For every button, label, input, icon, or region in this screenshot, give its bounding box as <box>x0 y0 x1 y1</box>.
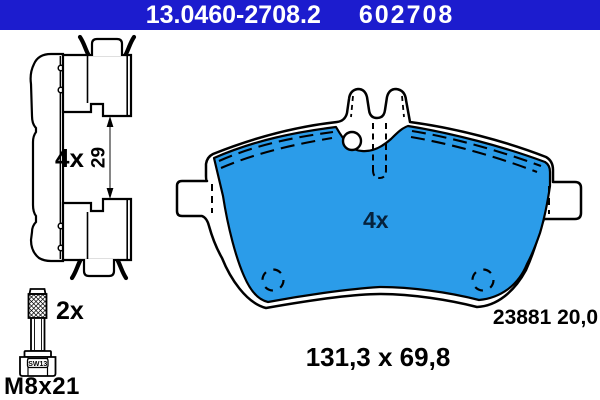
side-top-clip-tab <box>92 39 122 56</box>
side-bottom-clip-prong-right <box>118 261 126 278</box>
side-friction-block-upper <box>63 55 131 116</box>
side-top-clip-prong-right <box>126 37 134 54</box>
bolt-thread <box>29 294 47 318</box>
side-bottom-clip-prong-left <box>72 261 80 278</box>
brake-pad-technical-drawing: 13.0460-2708.2 602708 <box>0 0 600 400</box>
dimension-arrow-up <box>107 116 114 127</box>
pad-wva-thickness-label: 23881 20,0 <box>478 306 598 330</box>
pad-dimensions-label: 131,3 x 69,8 <box>278 342 478 373</box>
sensor-hole <box>343 132 361 150</box>
pad-front-drawing <box>177 89 581 308</box>
bolt-shank <box>31 318 45 351</box>
bolt-drawing: SW13 <box>20 289 56 376</box>
side-bottom-clip-tab <box>84 259 114 276</box>
line-art: SW13 <box>0 0 600 400</box>
dimension-arrow-down <box>107 188 114 199</box>
side-view-quantity-label: 4x <box>55 143 84 174</box>
bolt-quantity-label: 2x <box>56 297 84 326</box>
side-top-clip-prong-left <box>80 37 88 54</box>
side-view-height-dimension: 29 <box>84 142 115 174</box>
side-friction-block-lower <box>63 199 131 260</box>
bolt-thread-size-label: M8x21 <box>4 373 80 400</box>
pad-quantity-label: 4x <box>363 207 389 234</box>
bolt-head-label: SW13 <box>28 361 47 368</box>
